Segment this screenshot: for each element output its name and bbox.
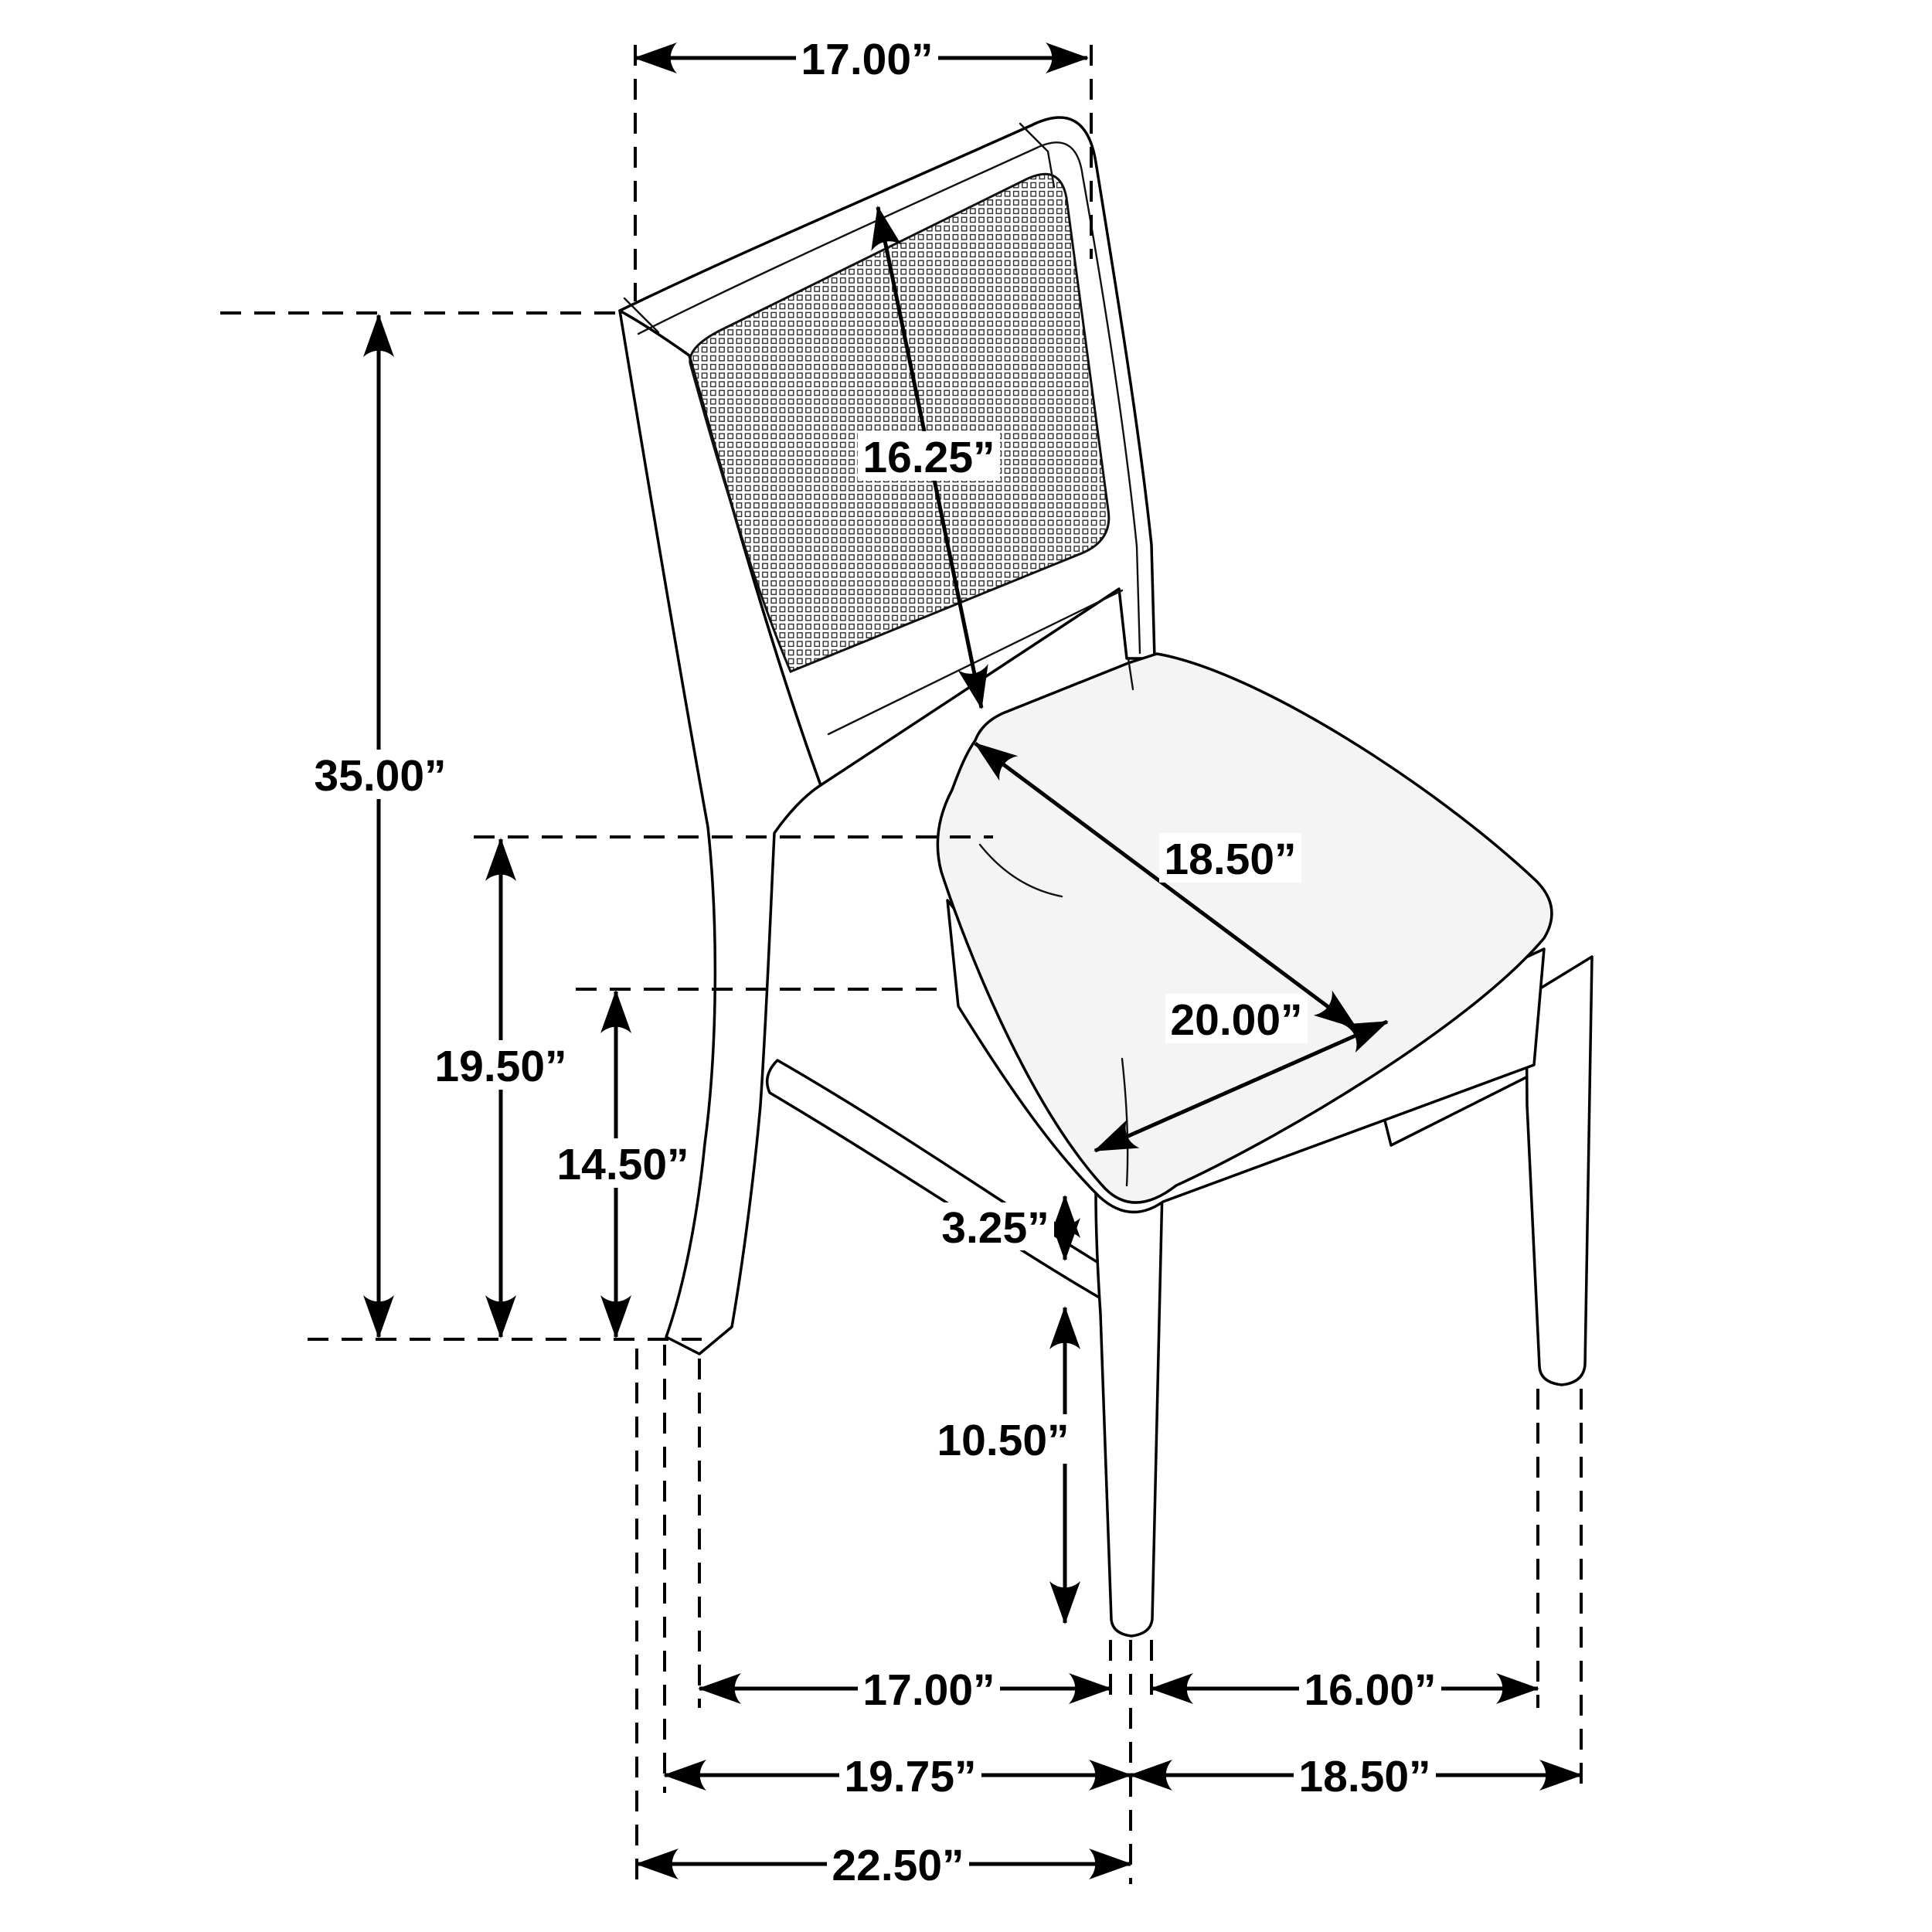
dim-overall-depth-label: 22.50” [832,1841,964,1890]
dim-seat-height-label: 19.50” [434,1042,566,1091]
diagram-canvas: 17.00” 16.25” 35.00” 19.50” 14.50” 18.50… [0,0,1932,1932]
dim-back-panel-label: 16.25” [862,433,995,482]
dim-footprint-depth-label: 19.75” [844,1752,976,1801]
dim-leg-span-label: 17.00” [862,1665,995,1715]
seat-cushion [937,654,1552,1202]
chair-drawing [620,117,1592,1636]
dim-apron-gap-label: 3.25” [941,1203,1049,1253]
dim-back-width-label: 17.00” [801,35,933,84]
dim-seat-depth-label: 18.50” [1164,835,1296,884]
chair-dimension-diagram: 17.00” 16.25” 35.00” 19.50” 14.50” 18.50… [0,0,1932,1932]
dim-front-spacing-label: 16.00” [1304,1665,1436,1715]
dim-stretcher-height-label: 10.50” [937,1416,1069,1465]
dim-overall-height-label: 35.00” [314,751,446,801]
dim-seat-width-label: 20.00” [1170,995,1302,1045]
dim-footprint-width-label: 18.50” [1298,1752,1430,1801]
front-left-leg [1096,1189,1162,1636]
dim-apron-height-label: 14.50” [556,1140,689,1189]
